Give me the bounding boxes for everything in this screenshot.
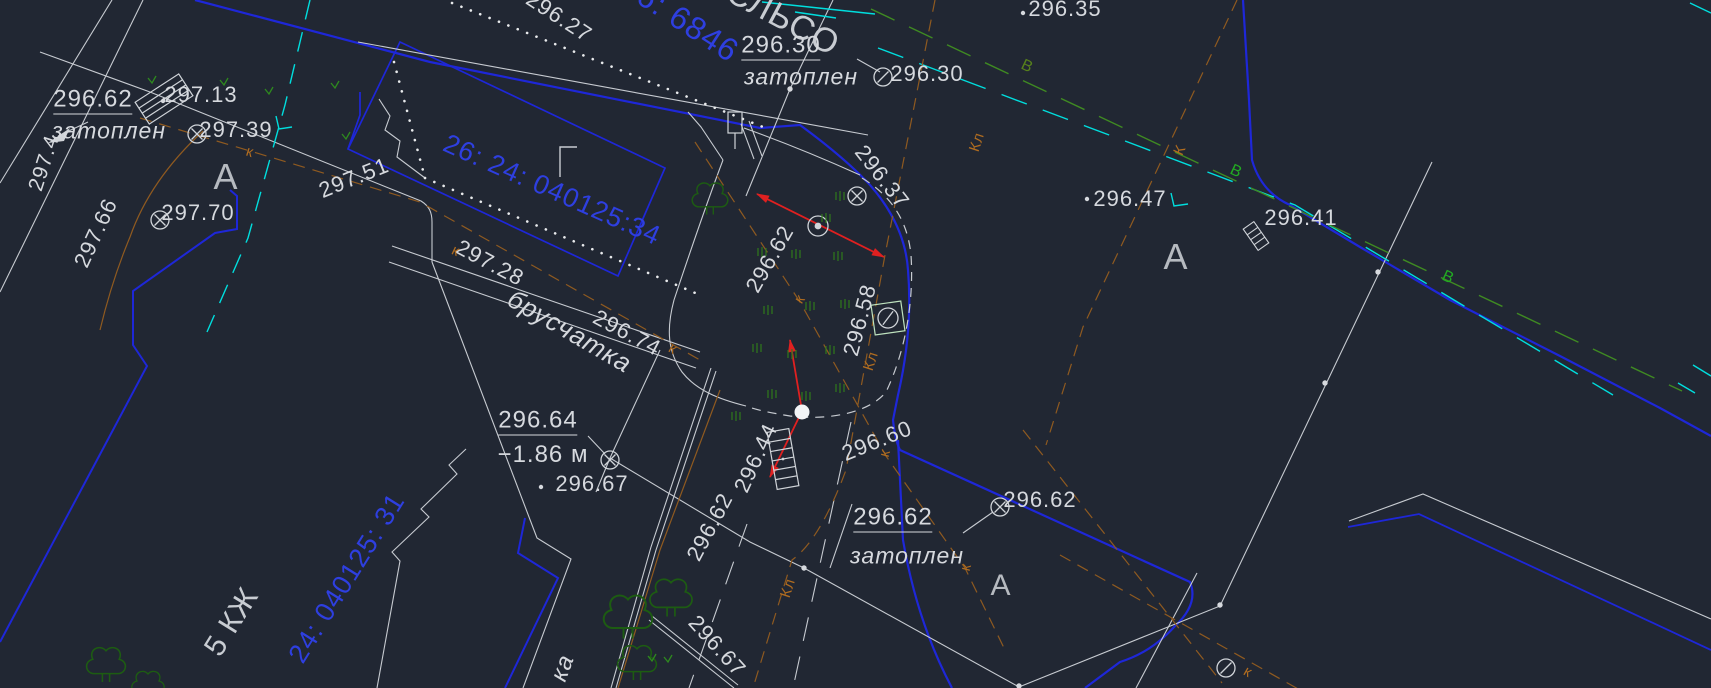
water-dot-icon [795,405,810,420]
corner-mark-icon [560,147,577,177]
post-icon [728,112,742,149]
vmark-icon [148,76,156,83]
stream-water-lines [195,0,1711,688]
cad-viewport[interactable]: 296.62затоплен297.4297.66297.13297.39А29… [0,0,1711,688]
manhole-slash-icon [1217,659,1235,677]
vertex-dot-icon [1217,602,1222,607]
vmark-icon [220,78,228,85]
vmark-icon [664,655,672,662]
tuft-icon [768,389,776,399]
tree-icon [692,183,728,215]
point-dot-icon [1085,197,1089,201]
vertex-dot-icon [1375,269,1380,274]
manhole-cross-icon [991,498,1009,516]
manhole-cross-icon [151,211,169,229]
tuft-icon [788,349,796,359]
manhole-cross-icon [188,125,206,143]
tuft-icon [732,411,740,421]
tuft-icon [836,383,844,393]
fence-dotted-lines [394,3,763,295]
flow-direction-arrows [757,194,884,477]
sewer-lines-brown [100,0,1300,688]
vertex-dot-icon [1016,683,1021,688]
leader-arrowhead [48,128,70,143]
manhole-slash-icon [874,68,892,86]
tuft-icon [841,299,849,309]
water-main-green [871,9,1682,391]
symbol-layer [87,11,1381,688]
tree-icon [604,596,653,639]
point-dot-icon [539,485,543,489]
steps-large-icon [135,74,193,124]
tuft-icon [764,305,772,315]
vmark-icon [342,132,350,139]
road-axis-dashed [689,422,851,688]
vertex-dot-icon [787,86,792,91]
manhole-cross-icon [848,187,866,205]
flood-boundary-dashed [746,178,912,417]
vertex-dot-icon [1322,380,1327,385]
tree-icon [87,648,126,682]
steps-tall-icon [767,429,799,490]
point-dot-icon [1021,11,1025,15]
road-terrain-lines [0,0,1711,688]
tuft-icon [792,249,800,259]
benchmark-icon [808,216,828,236]
tuft-icon [753,343,761,353]
steps-small-icon [1243,222,1269,251]
tuft-icon [802,391,810,401]
tree-icon [650,579,692,616]
tree-icon [132,671,164,688]
vmark-icon [331,81,339,88]
vmark-icon [265,87,273,94]
tuft-icon [806,301,814,311]
map-drawing [0,0,1711,688]
vertex-dot-icon [801,565,806,570]
point-dot-icon [161,99,165,103]
manhole-cross-icon [601,451,619,469]
tuft-icon [836,191,844,201]
tuft-icon [834,251,842,261]
cable-lines-cyan [207,0,1711,395]
building-blue-outlines [0,42,665,688]
